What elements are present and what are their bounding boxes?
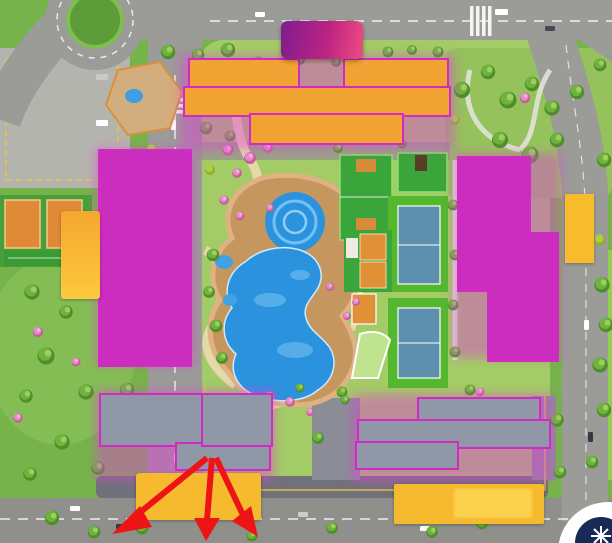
masterplan-map [0,0,612,543]
amenity-markers-layer [0,0,612,543]
